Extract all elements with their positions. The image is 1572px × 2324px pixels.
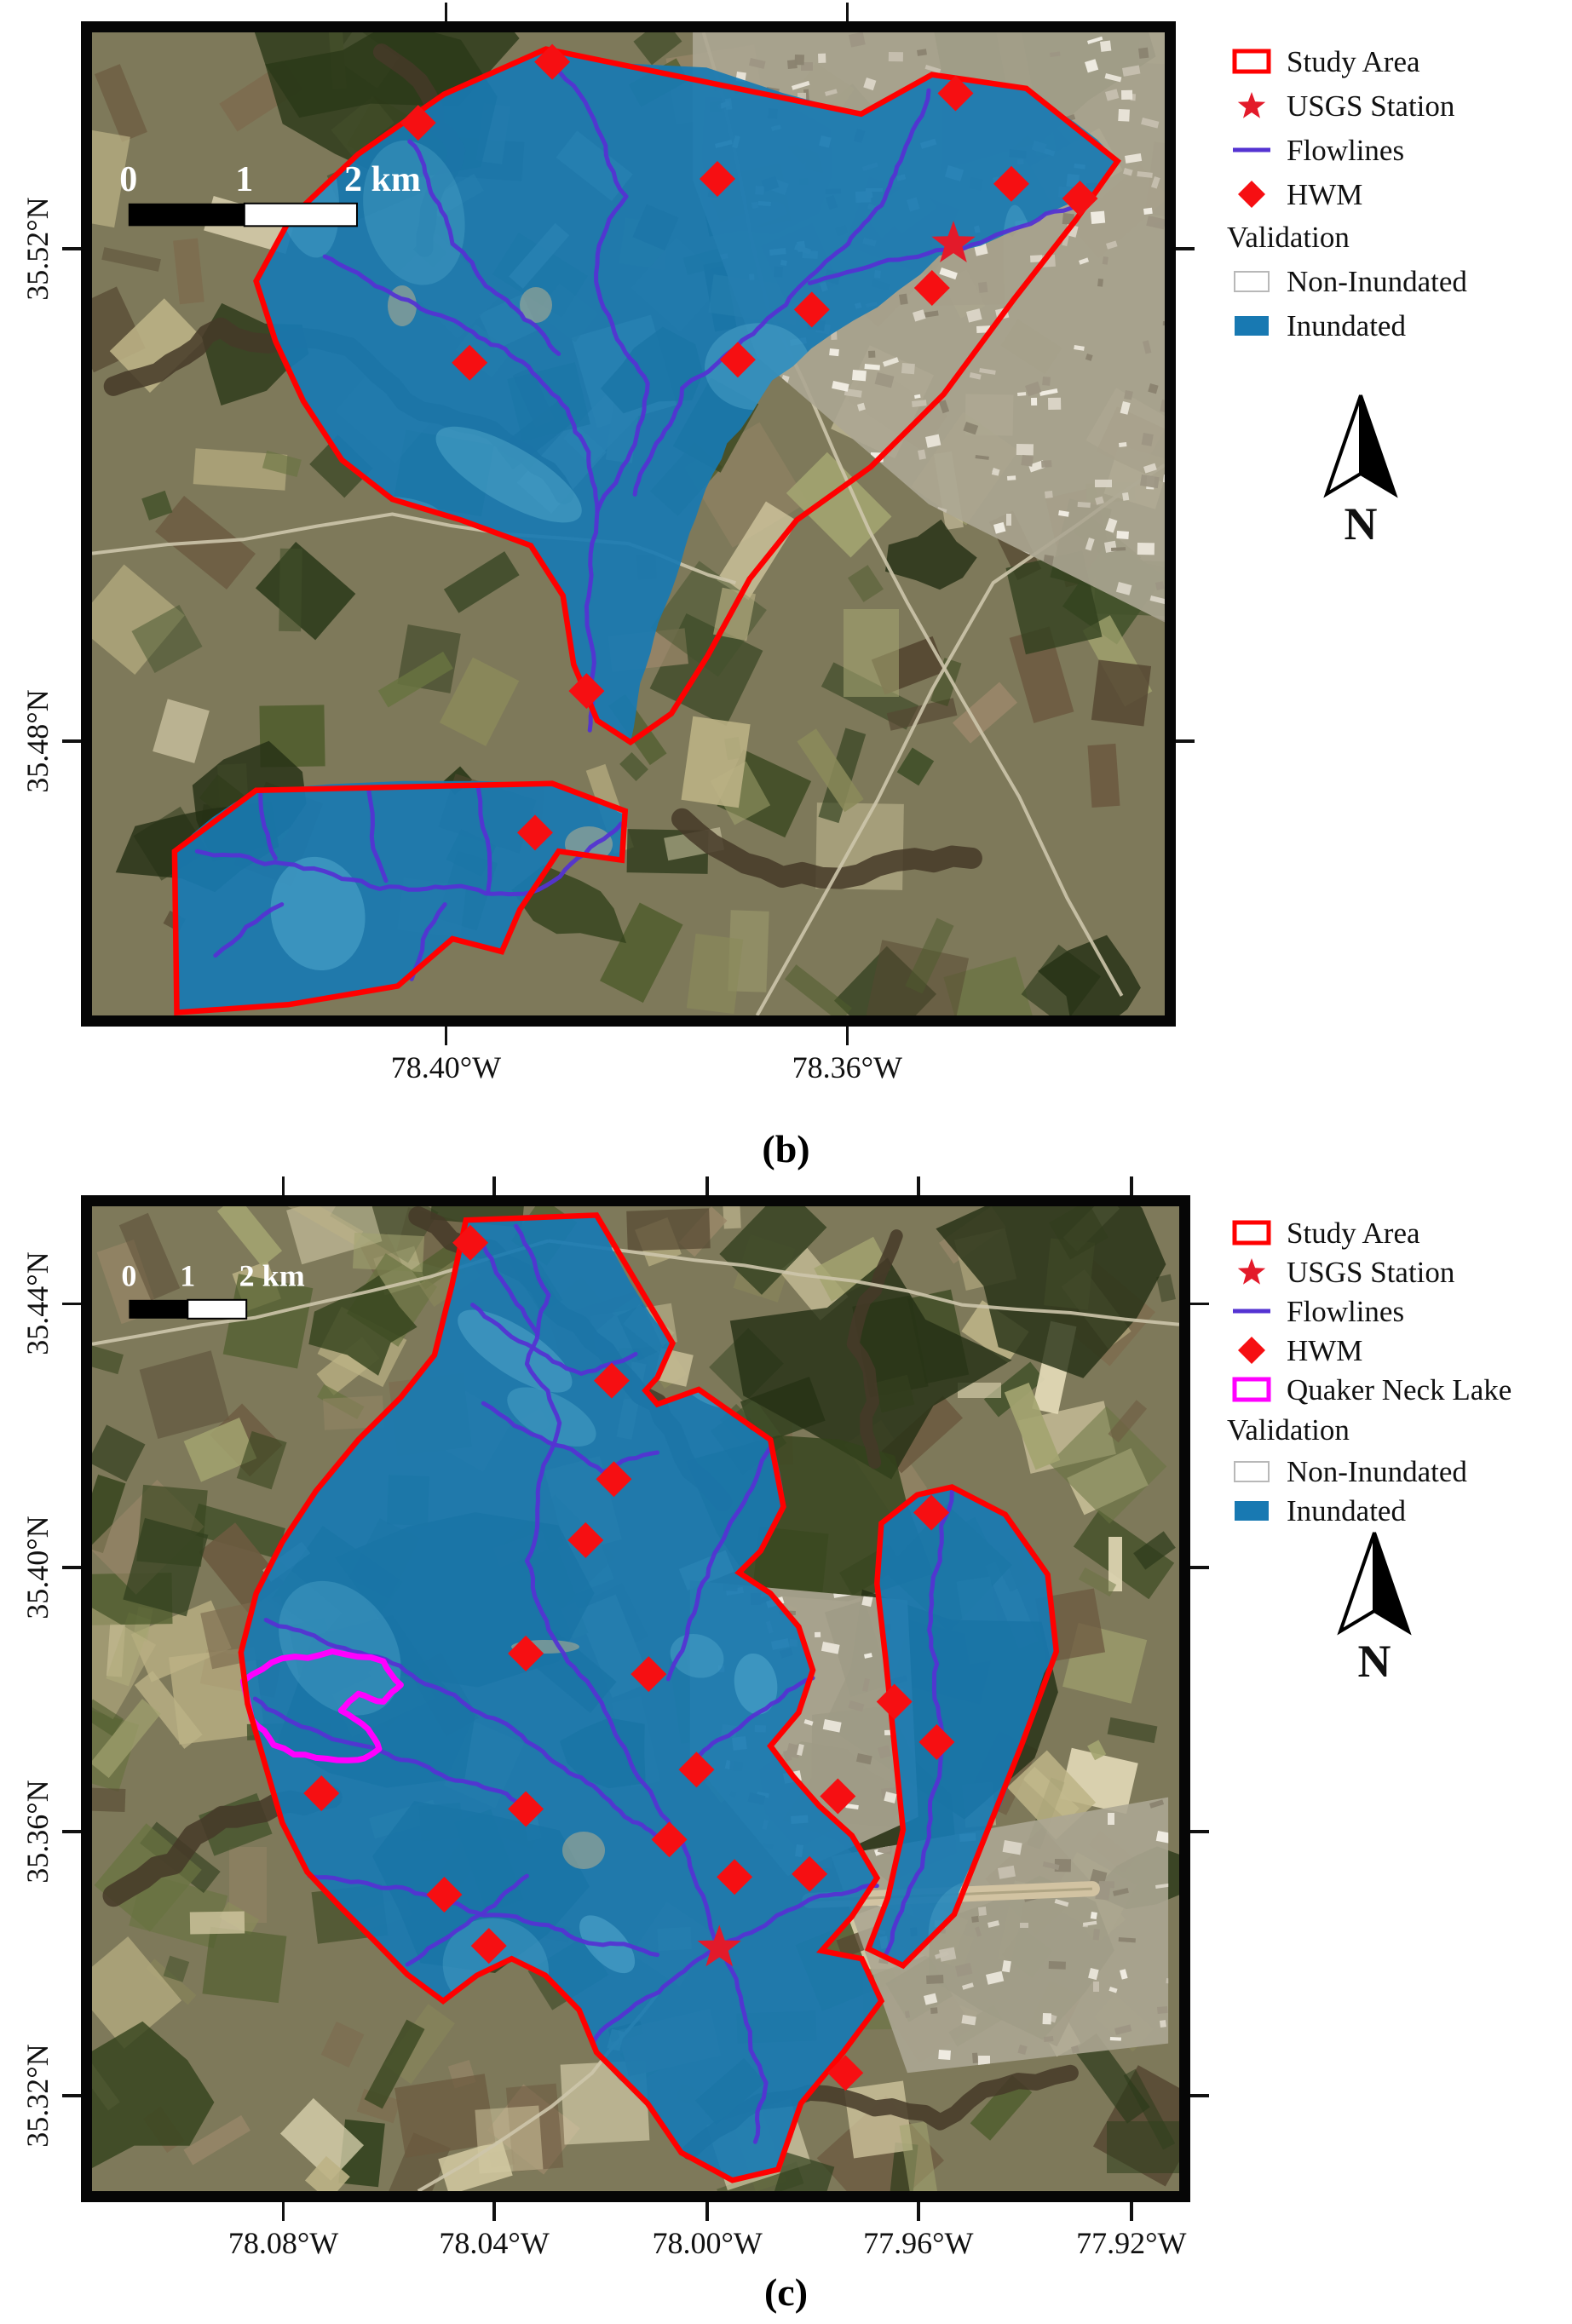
legend-item-flowlines: Flowlines	[1227, 1291, 1512, 1331]
panel-b-map-canvas: 012 km	[92, 32, 1165, 1015]
north-label: N	[1305, 498, 1416, 550]
panel-c-legend: Study AreaUSGS StationFlowlinesHWMQuaker…	[1227, 1213, 1512, 1530]
legend-item-usgs-station: USGS Station	[1227, 83, 1467, 128]
axis-tick	[917, 2202, 920, 2221]
panel-c-map-canvas: 012 km	[92, 1206, 1179, 2191]
flowlines-icon	[1227, 133, 1276, 167]
x-axis-label: 78.00°W	[653, 2225, 763, 2261]
panel-c-map: 012 km	[81, 1195, 1190, 2202]
x-axis-label: 78.04°W	[439, 2225, 549, 2261]
legend-label: Flowlines	[1287, 1297, 1404, 1326]
axis-tick	[1130, 2202, 1133, 2221]
legend-label: Inundated	[1287, 1496, 1406, 1526]
hwm-icon	[1227, 177, 1276, 211]
x-axis-label: 77.92°W	[1076, 2225, 1186, 2261]
x-axis-label: 78.36°W	[792, 1050, 902, 1085]
panel-c-caption: (c)	[0, 2269, 1572, 2315]
axis-tick	[62, 1830, 81, 1833]
x-axis-label: 77.96°W	[863, 2225, 973, 2261]
axis-tick	[282, 1176, 285, 1195]
svg-text:1: 1	[235, 160, 253, 199]
panel-b-north-arrow: N	[1305, 392, 1416, 550]
legend-item-quaker-neck-lake: Quaker Neck Lake	[1227, 1370, 1512, 1409]
legend-label: HWM	[1287, 1336, 1362, 1366]
legend-item-flowlines: Flowlines	[1227, 128, 1467, 172]
y-axis-label: 35.36°N	[20, 1780, 55, 1883]
panel-c-north-arrow: N	[1319, 1529, 1430, 1688]
x-axis-label: 78.40°W	[391, 1050, 501, 1085]
legend-item-hwm: HWM	[1227, 1331, 1512, 1370]
non-inundated-icon	[1227, 1454, 1276, 1488]
quaker-neck-lake-icon	[1227, 1372, 1276, 1406]
axis-tick	[492, 1176, 496, 1195]
legend-item-study-area: Study Area	[1227, 1213, 1512, 1252]
hwm-icon	[1227, 1333, 1276, 1367]
usgs-station-icon	[1227, 89, 1276, 123]
legend-label: Non-Inundated	[1287, 267, 1467, 296]
figure-page: { "figure": { "description": "Flood inun…	[0, 0, 1572, 2324]
inundated-icon	[1227, 1493, 1276, 1527]
north-arrow-icon	[1319, 1529, 1430, 1636]
legend-label: Flowlines	[1287, 135, 1404, 165]
axis-tick	[1190, 1830, 1209, 1833]
study-area-icon	[1227, 1216, 1276, 1250]
legend-label: HWM	[1287, 180, 1362, 210]
axis-tick	[62, 1566, 81, 1569]
svg-text:0: 0	[119, 160, 137, 199]
axis-tick	[846, 3, 849, 21]
legend-label: Study Area	[1287, 1218, 1420, 1248]
legend-item-usgs-station: USGS Station	[1227, 1252, 1512, 1291]
svg-text:2 km: 2 km	[344, 160, 421, 199]
axis-tick	[846, 1027, 849, 1045]
y-axis-label: 35.48°N	[20, 689, 55, 792]
axis-tick	[1190, 2094, 1209, 2097]
north-label: N	[1319, 1635, 1430, 1688]
flowlines-icon	[1227, 1294, 1276, 1328]
legend-label: USGS Station	[1287, 1257, 1454, 1287]
legend-item-non-inundated: Non-Inundated	[1227, 1452, 1512, 1491]
panel-b-legend: Study AreaUSGS StationFlowlinesHWMValida…	[1227, 39, 1467, 348]
axis-tick	[1176, 739, 1195, 743]
legend-label: USGS Station	[1287, 91, 1454, 121]
study-area-icon	[1227, 44, 1276, 78]
legend-item-hwm: HWM	[1227, 172, 1467, 216]
svg-text:0: 0	[121, 1259, 136, 1293]
axis-tick	[1176, 247, 1195, 250]
y-axis-label: 35.52°N	[20, 197, 55, 300]
axis-tick	[62, 247, 81, 250]
axis-tick	[445, 1027, 448, 1045]
axis-tick	[62, 1303, 81, 1306]
inundated-icon	[1227, 308, 1276, 342]
axis-tick	[492, 2202, 496, 2221]
legend-label: Quaker Neck Lake	[1287, 1375, 1512, 1405]
legend-section-validation: Validation	[1227, 216, 1467, 259]
y-axis-label: 35.32°N	[20, 2044, 55, 2147]
legend-section-validation: Validation	[1227, 1409, 1512, 1452]
y-axis-label: 35.40°N	[20, 1516, 55, 1619]
legend-item-inundated: Inundated	[1227, 303, 1467, 348]
panel-b-map: 012 km	[81, 21, 1176, 1027]
x-axis-label: 78.08°W	[228, 2225, 338, 2261]
legend-label: Study Area	[1287, 47, 1420, 77]
axis-tick	[705, 2202, 709, 2221]
north-arrow-icon	[1305, 392, 1416, 498]
legend-label: Non-Inundated	[1287, 1457, 1467, 1487]
axis-tick	[1190, 1566, 1209, 1569]
non-inundated-icon	[1227, 264, 1276, 298]
axis-tick	[705, 1176, 709, 1195]
y-axis-label: 35.44°N	[20, 1252, 55, 1355]
axis-tick	[445, 3, 448, 21]
axis-tick	[1190, 1303, 1209, 1306]
axis-tick	[282, 2202, 285, 2221]
legend-item-inundated: Inundated	[1227, 1491, 1512, 1530]
axis-tick	[917, 1176, 920, 1195]
legend-item-non-inundated: Non-Inundated	[1227, 259, 1467, 303]
usgs-station-icon	[1227, 1255, 1276, 1289]
legend-item-study-area: Study Area	[1227, 39, 1467, 83]
panel-b-caption: (b)	[0, 1126, 1572, 1171]
axis-tick	[62, 2094, 81, 2097]
axis-tick	[62, 739, 81, 743]
svg-text:1: 1	[180, 1259, 195, 1293]
svg-text:2 km: 2 km	[239, 1259, 305, 1293]
axis-tick	[1130, 1176, 1133, 1195]
legend-label: Inundated	[1287, 311, 1406, 341]
